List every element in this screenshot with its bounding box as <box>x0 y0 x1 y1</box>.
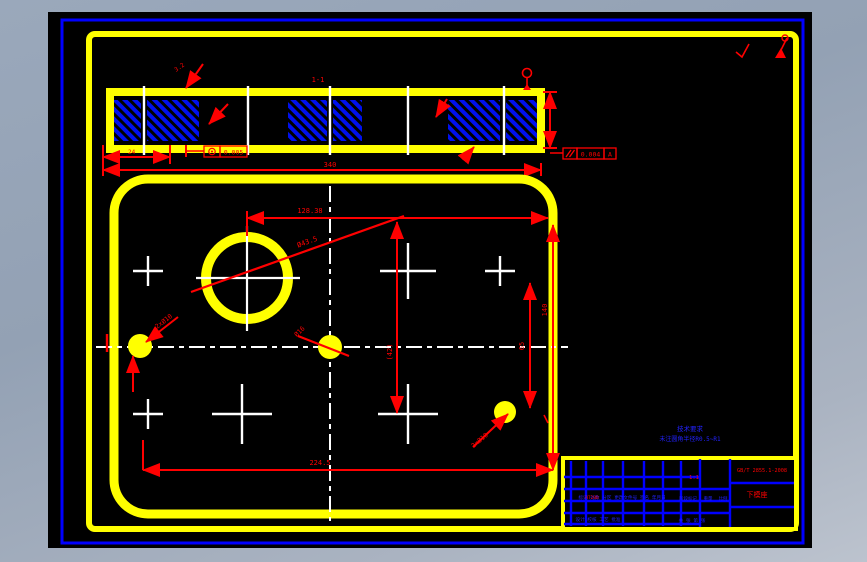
part-name: 下模座 <box>747 490 768 499</box>
scale-value: 1:1 <box>689 475 699 481</box>
weight-label: 重量 <box>704 495 713 502</box>
section-hatch-blocks <box>114 100 537 141</box>
stage-label: 阶段标记 <box>679 495 697 502</box>
tol-parallel-value: 0.004 <box>581 151 601 159</box>
dim-total-value: 340 <box>324 161 337 169</box>
sheet-info: 共 张 第 张 <box>679 517 706 524</box>
scale-label: 比例 <box>719 495 728 502</box>
tol-datum-letter: A <box>608 151 612 159</box>
dim-bottom-value: 224.5 <box>309 459 330 467</box>
dim-v-mid-value: (42) <box>386 344 394 361</box>
title-block: 标记 处数 分区 更改文件号 签名 年月日 设计 校核 工艺 批准 阶段标记 重… <box>563 458 796 529</box>
dowel-hole-right <box>494 401 516 423</box>
tol-concentric-value: 0.005 <box>224 149 244 157</box>
standard-number: GB/T 2855.1-2008 <box>737 468 787 474</box>
dowel-hole-left <box>128 334 152 358</box>
note-line2: 未注圆角半径R0.5~R1 <box>659 435 721 443</box>
note-line1: 技术要求 <box>677 424 704 433</box>
drawing-canvas[interactable]: 1-1 3.2 24 340 <box>0 0 867 562</box>
material-value: HT200 <box>585 495 599 501</box>
plan-view: Ø43.5 128.38 (42) 65 140 224.5 <box>96 179 568 521</box>
cad-viewport-screen: 1-1 3.2 24 340 <box>0 0 867 562</box>
dim-left-value: 24 <box>128 149 136 156</box>
dim-top-value: 128.38 <box>297 207 322 215</box>
section-label: 1-1 <box>312 76 325 84</box>
center-hole <box>318 335 342 359</box>
dim-v-right-value: 65 <box>518 342 526 350</box>
signature-row-labels: 设计 校核 工艺 批准 <box>575 516 620 523</box>
dim-v-edge-value: 140 <box>541 304 549 317</box>
